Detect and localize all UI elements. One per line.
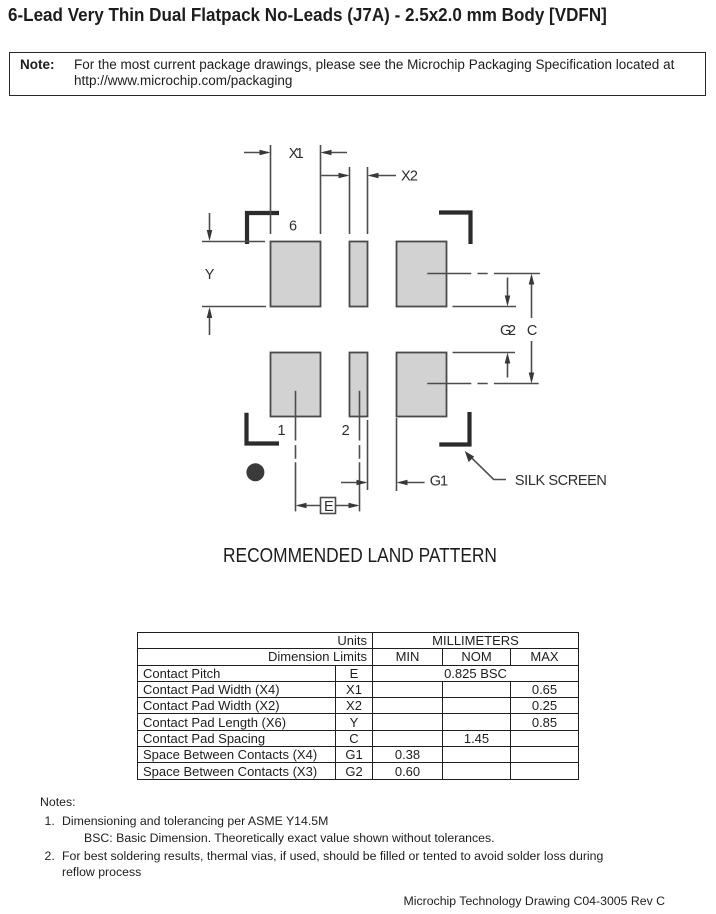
svg-text:G1: G1 xyxy=(430,474,448,490)
svg-text:SILK SCREEN: SILK SCREEN xyxy=(515,473,607,489)
svg-text:G2: G2 xyxy=(500,323,516,339)
svg-text:Y: Y xyxy=(205,267,215,283)
svg-text:2: 2 xyxy=(342,423,350,439)
svg-text:6: 6 xyxy=(289,219,297,235)
svg-text:1: 1 xyxy=(278,423,286,439)
svg-text:E: E xyxy=(324,499,334,515)
svg-text:X2: X2 xyxy=(401,169,418,185)
svg-text:C: C xyxy=(527,323,537,339)
svg-text:X1: X1 xyxy=(289,146,304,162)
